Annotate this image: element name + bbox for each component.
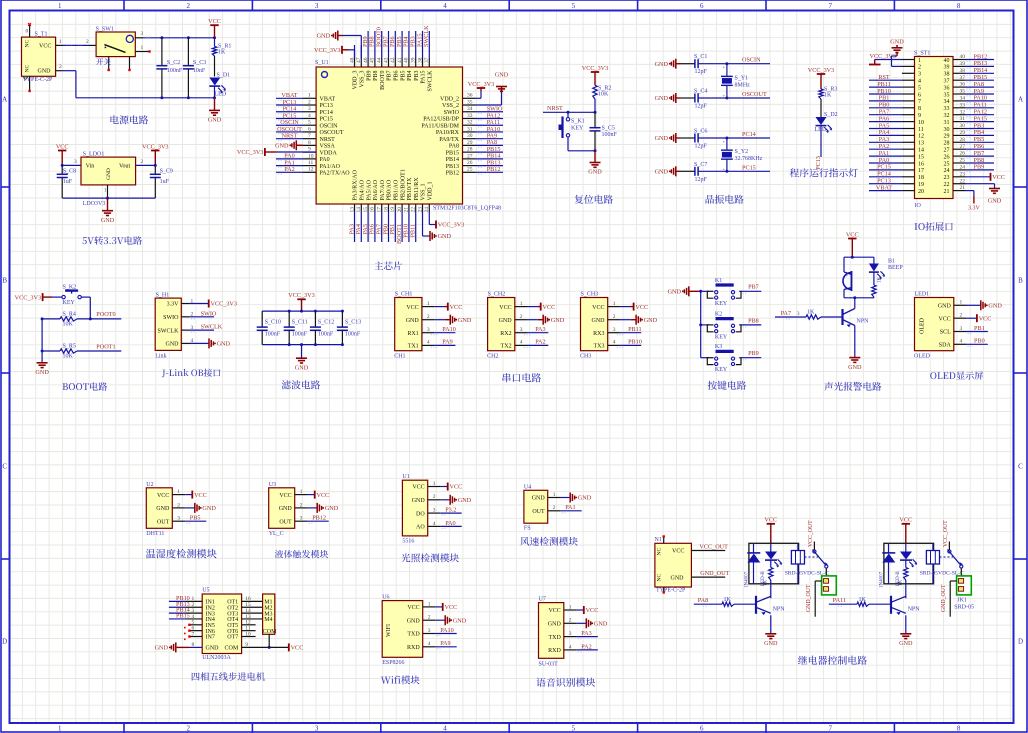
svg-text:6: 6 (700, 725, 704, 733)
svg-text:29: 29 (944, 134, 950, 140)
svg-text:6: 6 (308, 126, 311, 132)
svg-text:VCC_3V3: VCC_3V3 (438, 222, 464, 229)
svg-text:JK1: JK1 (957, 598, 967, 604)
svg-text:23: 23 (944, 175, 950, 181)
svg-text:NRST: NRST (547, 105, 563, 112)
svg-text:2: 2 (186, 2, 190, 10)
svg-text:27: 27 (467, 153, 473, 159)
svg-text:SWIO: SWIO (444, 110, 460, 116)
svg-text:1N4007: 1N4007 (745, 571, 750, 588)
svg-text:19: 19 (918, 182, 924, 188)
svg-text:25: 25 (960, 158, 966, 164)
svg-text:1: 1 (177, 489, 180, 495)
svg-text:38: 38 (944, 72, 950, 78)
svg-text:GND: GND (217, 341, 231, 348)
svg-text:8: 8 (957, 2, 961, 10)
svg-text:35: 35 (960, 89, 966, 95)
svg-text:1: 1 (141, 45, 144, 51)
svg-text:VCC: VCC (764, 517, 777, 524)
svg-text:PB5: PB5 (190, 515, 201, 522)
svg-text:A: A (1018, 96, 1023, 104)
svg-text:PA10: PA10 (440, 627, 454, 634)
svg-text:2: 2 (613, 314, 616, 320)
svg-text:34: 34 (960, 96, 966, 102)
svg-text:ULN2003A: ULN2003A (202, 655, 231, 661)
svg-text:S_K2: S_K2 (63, 285, 77, 291)
svg-text:1K: 1K (807, 310, 815, 316)
svg-text:PB14: PB14 (446, 157, 459, 163)
svg-text:PA9: PA9 (442, 339, 452, 346)
svg-text:LDO3V3: LDO3V3 (83, 201, 106, 207)
svg-text:GND: GND (988, 198, 1002, 205)
svg-text:5: 5 (918, 85, 921, 91)
svg-text:2: 2 (141, 159, 144, 165)
svg-text:U3: U3 (269, 482, 276, 488)
svg-text:VCC: VCC (445, 604, 458, 611)
svg-text:1: 1 (427, 301, 430, 307)
svg-text:33: 33 (944, 106, 950, 112)
svg-text:2: 2 (186, 725, 190, 733)
svg-text:3: 3 (141, 31, 144, 37)
svg-text:2: 2 (918, 65, 921, 71)
svg-text:39: 39 (960, 61, 966, 67)
svg-text:21: 21 (960, 185, 966, 191)
svg-text:17: 17 (918, 168, 924, 174)
svg-text:PB1: PB1 (974, 325, 985, 332)
svg-text:PA0: PA0 (320, 157, 330, 163)
svg-text:4: 4 (613, 340, 616, 346)
svg-text:PB9: PB9 (974, 164, 985, 171)
svg-text:PB3: PB3 (414, 71, 420, 81)
svg-text:10K: 10K (63, 353, 74, 359)
svg-text:PB7: PB7 (748, 284, 759, 291)
svg-text:47: 47 (356, 57, 362, 63)
svg-text:S_CH2: S_CH2 (488, 292, 506, 298)
svg-text:10: 10 (918, 120, 924, 126)
svg-text:2: 2 (59, 64, 62, 70)
svg-text:2: 2 (300, 502, 303, 508)
svg-text:VBAT: VBAT (876, 184, 892, 191)
svg-text:VCC: VCC (208, 18, 221, 25)
svg-text:2: 2 (86, 39, 89, 45)
svg-text:26: 26 (960, 151, 966, 157)
svg-text:PA11/USB/DM: PA11/USB/DM (421, 123, 459, 129)
svg-text:PB12: PB12 (446, 171, 459, 177)
svg-text:IO: IO (915, 203, 922, 209)
svg-text:5: 5 (572, 2, 576, 10)
svg-text:SWCLK: SWCLK (158, 328, 180, 334)
svg-text:GND: GND (890, 39, 904, 46)
svg-text:0: 0 (26, 29, 29, 35)
svg-text:29: 29 (960, 130, 966, 136)
svg-text:PA7/AO: PA7/AO (380, 179, 386, 200)
svg-text:3: 3 (74, 159, 77, 165)
svg-text:PA2: PA2 (535, 339, 545, 346)
svg-text:100nF: 100nF (265, 331, 281, 337)
svg-text:1K: 1K (899, 580, 904, 587)
svg-text:GND: GND (438, 233, 452, 240)
svg-text:2: 2 (427, 314, 430, 320)
svg-text:STM32F103C8T6_LQFP48: STM32F103C8T6_LQFP48 (433, 206, 501, 212)
svg-text:100nF: 100nF (292, 331, 308, 337)
svg-text:PC15: PC15 (320, 117, 333, 123)
svg-text:100nF: 100nF (318, 331, 334, 337)
svg-text:GND: GND (499, 318, 513, 324)
svg-text:26: 26 (944, 154, 950, 160)
svg-text:39: 39 (411, 57, 417, 63)
svg-text:VCC_3V3: VCC_3V3 (211, 301, 237, 308)
svg-text:S_C10: S_C10 (265, 319, 281, 325)
svg-text:GND: GND (275, 143, 289, 150)
svg-text:PA0: PA0 (445, 520, 455, 527)
svg-text:GND: GND (532, 496, 546, 502)
svg-text:RX1: RX1 (407, 331, 418, 337)
svg-text:KEY: KEY (715, 334, 728, 340)
svg-text:27: 27 (960, 144, 966, 150)
svg-text:GND: GND (655, 95, 669, 102)
svg-text:2: 2 (569, 618, 572, 624)
svg-text:VSS_2: VSS_2 (442, 103, 459, 109)
svg-text:3: 3 (177, 516, 180, 522)
svg-text:32.768KHz: 32.768KHz (735, 156, 763, 162)
svg-text:S_C12: S_C12 (318, 319, 334, 325)
svg-text:12: 12 (308, 167, 314, 173)
svg-text:1: 1 (58, 2, 62, 10)
svg-text:36: 36 (944, 85, 950, 91)
svg-text:PB6: PB6 (394, 71, 400, 81)
svg-text:PC14: PC14 (742, 131, 756, 138)
svg-text:VCC_3V3: VCC_3V3 (237, 149, 263, 156)
svg-text:1: 1 (58, 725, 62, 733)
svg-text:FS: FS (524, 526, 531, 532)
svg-text:1: 1 (308, 93, 311, 99)
svg-text:S_C2: S_C2 (167, 60, 180, 66)
svg-text:NC: NC (24, 40, 30, 48)
svg-text:U1: U1 (402, 474, 409, 480)
svg-text:13: 13 (918, 141, 924, 147)
svg-text:14: 14 (918, 148, 924, 154)
svg-text:NC: NC (657, 574, 663, 582)
svg-text:OSCIN: OSCIN (742, 57, 761, 64)
svg-text:29: 29 (467, 140, 473, 146)
svg-text:RX2: RX2 (500, 331, 511, 337)
svg-text:U5: U5 (202, 588, 209, 594)
svg-text:VCC: VCC (548, 608, 560, 614)
svg-text:PB11: PB11 (410, 224, 417, 238)
svg-text:VCC_3V3: VCC_3V3 (808, 67, 834, 74)
svg-text:U6: U6 (382, 594, 389, 600)
svg-text:37: 37 (960, 75, 966, 81)
svg-text:GND: GND (106, 168, 112, 180)
svg-text:GND: GND (655, 135, 669, 142)
svg-text:8: 8 (918, 106, 921, 112)
svg-text:40: 40 (944, 58, 950, 64)
svg-text:PB1/AO: PB1/AO (394, 179, 400, 200)
svg-text:S_D2: S_D2 (824, 112, 838, 118)
svg-text:3: 3 (308, 106, 311, 112)
svg-text:7: 7 (918, 99, 921, 105)
svg-text:32: 32 (960, 109, 966, 115)
svg-text:32: 32 (467, 120, 473, 126)
svg-text:PA9/TX: PA9/TX (439, 137, 459, 143)
svg-text:S_H1: S_H1 (156, 292, 170, 298)
svg-text:KEY: KEY (715, 301, 728, 307)
svg-text:3.3V: 3.3V (968, 206, 981, 212)
svg-text:PB2/BOOT1: PB2/BOOT1 (400, 169, 406, 200)
svg-text:VCC_3V3: VCC_3V3 (288, 292, 314, 299)
svg-text:4: 4 (443, 2, 447, 10)
svg-text:C: C (1018, 463, 1023, 471)
svg-text:2: 2 (177, 502, 180, 508)
svg-text:4: 4 (569, 644, 572, 650)
svg-text:31: 31 (944, 120, 950, 126)
svg-text:GND: GND (279, 506, 293, 512)
svg-text:S_CH3: S_CH3 (581, 292, 599, 298)
svg-text:48: 48 (349, 57, 355, 63)
svg-text:22: 22 (944, 182, 950, 188)
svg-text:NPN: NPN (857, 319, 870, 325)
svg-text:VCC_3V3: VCC_3V3 (314, 47, 340, 54)
svg-text:PB9: PB9 (366, 71, 372, 81)
svg-text:PB10: PB10 (628, 339, 642, 346)
svg-text:OLED: OLED (920, 317, 926, 334)
svg-text:VCC: VCC (938, 316, 950, 322)
svg-text:S_CH1: S_CH1 (395, 292, 413, 298)
svg-text:TX1: TX1 (408, 344, 419, 350)
svg-text:S_Y2: S_Y2 (735, 149, 749, 155)
svg-text:PA3: PA3 (581, 630, 591, 637)
svg-text:PA5/AO: PA5/AO (366, 179, 372, 200)
svg-text:3: 3 (520, 327, 523, 333)
svg-text:U7: U7 (539, 596, 546, 602)
svg-text:SWIO: SWIO (201, 310, 217, 317)
svg-text:5: 5 (308, 120, 311, 126)
svg-text:DHT11: DHT11 (146, 531, 164, 537)
svg-text:10: 10 (308, 153, 314, 159)
svg-text:S_C5: S_C5 (602, 126, 615, 132)
svg-text:VBAT: VBAT (320, 97, 336, 103)
svg-text:1: 1 (569, 604, 572, 610)
svg-text:5: 5 (572, 725, 576, 733)
svg-text:4: 4 (960, 339, 963, 345)
svg-text:RX3: RX3 (593, 331, 604, 337)
svg-text:28: 28 (960, 137, 966, 143)
svg-text:36: 36 (467, 93, 473, 99)
svg-text:S_C13: S_C13 (345, 319, 361, 325)
svg-text:VCC: VCC (846, 231, 859, 238)
svg-text:1K: 1K (878, 277, 883, 284)
svg-text:25: 25 (467, 167, 473, 173)
svg-text:COM: COM (225, 646, 239, 652)
svg-text:PB9: PB9 (748, 350, 759, 357)
svg-text:DO: DO (416, 511, 425, 517)
svg-text:12pF: 12pF (695, 104, 708, 110)
svg-text:K2: K2 (715, 311, 722, 317)
svg-text:2: 2 (520, 314, 523, 320)
svg-text:1: 1 (433, 481, 436, 487)
svg-text:NRST: NRST (282, 132, 298, 139)
svg-text:VCC_OUT: VCC_OUT (808, 520, 814, 547)
svg-text:2: 2 (960, 313, 963, 319)
svg-text:GND: GND (406, 318, 420, 324)
svg-text:4: 4 (427, 340, 430, 346)
svg-text:VCC: VCC (672, 549, 684, 555)
svg-text:A: A (2, 96, 7, 104)
svg-text:PC14: PC14 (320, 110, 333, 116)
svg-text:PB11/RX: PB11/RX (414, 177, 420, 201)
svg-text:GND: GND (548, 622, 562, 628)
svg-text:VCC: VCC (56, 143, 69, 150)
svg-text:GND: GND (166, 342, 180, 348)
svg-text:NPN: NPN (908, 607, 921, 613)
svg-text:38: 38 (960, 68, 966, 74)
svg-text:15: 15 (918, 154, 924, 160)
svg-text:PA2/TX/AO: PA2/TX/AO (320, 171, 351, 177)
svg-text:U2: U2 (146, 482, 153, 488)
svg-text:12: 12 (918, 134, 924, 140)
svg-text:IN7: IN7 (206, 635, 215, 641)
svg-text:COM: COM (263, 629, 277, 635)
svg-text:3: 3 (960, 326, 963, 332)
svg-text:S_SW1: S_SW1 (96, 26, 114, 32)
svg-text:1uF: 1uF (160, 179, 170, 185)
svg-text:44: 44 (377, 57, 383, 63)
svg-text:GND_OUT: GND_OUT (806, 584, 812, 612)
svg-text:3: 3 (428, 628, 431, 634)
svg-text:2: 2 (433, 494, 436, 500)
svg-text:VCC: VCC (194, 492, 207, 499)
svg-text:GND: GND (35, 369, 49, 376)
svg-text:BEEP: BEEP (888, 265, 903, 271)
svg-text:28: 28 (467, 147, 473, 153)
svg-text:Link: Link (155, 354, 166, 360)
svg-text:28: 28 (944, 141, 950, 147)
svg-text:GND: GND (988, 303, 1002, 310)
svg-text:P3.2: P3.2 (445, 507, 456, 514)
svg-text:PA3: PA3 (535, 326, 545, 333)
svg-text:42: 42 (390, 57, 396, 63)
svg-text:1: 1 (520, 301, 523, 307)
svg-text:6: 6 (700, 2, 704, 10)
svg-text:PB13: PB13 (446, 164, 459, 170)
svg-text:33: 33 (960, 102, 966, 108)
svg-text:1: 1 (960, 300, 963, 306)
svg-text:S_ST1: S_ST1 (914, 51, 930, 57)
svg-text:K3: K3 (715, 344, 722, 350)
svg-text:SWIO: SWIO (163, 315, 179, 321)
svg-text:GND: GND (407, 618, 421, 624)
svg-text:GND: GND (458, 317, 472, 324)
svg-text:GND: GND (551, 317, 565, 324)
svg-text:16: 16 (918, 161, 924, 167)
svg-text:GND: GND (495, 72, 509, 79)
svg-text:VSS_1: VSS_1 (421, 183, 427, 200)
svg-text:C: C (2, 463, 7, 471)
svg-text:TX3: TX3 (594, 344, 605, 350)
svg-text:38: 38 (417, 57, 423, 63)
svg-text:VCC: VCC (407, 605, 419, 611)
svg-text:10K: 10K (598, 91, 609, 97)
svg-text:NRST: NRST (320, 137, 336, 143)
svg-text:AO: AO (416, 525, 425, 531)
svg-text:PA9: PA9 (440, 640, 450, 647)
svg-text:S_C11: S_C11 (292, 319, 308, 325)
svg-text:12pF: 12pF (695, 144, 708, 150)
svg-text:PA1: PA1 (565, 504, 575, 511)
svg-text:PB5: PB5 (400, 71, 406, 81)
svg-text:VDD_3: VDD_3 (353, 71, 359, 90)
svg-text:SWCLK: SWCLK (428, 70, 434, 92)
svg-text:23: 23 (960, 171, 966, 177)
svg-text:WIFI: WIFI (386, 624, 392, 637)
svg-text:GND: GND (938, 304, 952, 310)
svg-text:10nF: 10nF (193, 68, 206, 74)
svg-text:RXD: RXD (407, 645, 420, 651)
svg-text:25: 25 (944, 161, 950, 167)
svg-text:4: 4 (433, 521, 436, 527)
svg-text:3: 3 (613, 327, 616, 333)
svg-text:VCC: VCC (979, 315, 992, 322)
svg-text:KEY: KEY (715, 367, 728, 373)
svg-text:Vout: Vout (119, 163, 131, 169)
svg-text:B: B (1018, 277, 1023, 285)
svg-text:100nF: 100nF (602, 132, 618, 138)
svg-text:NC: NC (24, 65, 30, 73)
svg-text:OUT: OUT (532, 509, 545, 515)
svg-text:1K: 1K (824, 93, 832, 99)
svg-text:10K: 10K (63, 321, 74, 327)
svg-text:3: 3 (315, 725, 319, 733)
svg-text:45: 45 (370, 57, 376, 63)
svg-text:+: + (846, 274, 849, 279)
svg-text:VCC_3V3: VCC_3V3 (142, 143, 168, 150)
svg-text:22: 22 (960, 178, 966, 184)
svg-text:PB0/AO: PB0/AO (387, 179, 393, 200)
svg-text:VCC: VCC (450, 484, 463, 491)
svg-text:TX2: TX2 (501, 344, 512, 350)
svg-text:PA15: PA15 (421, 71, 427, 84)
svg-text:GND: GND (453, 617, 467, 624)
svg-text:NC: NC (657, 548, 663, 556)
svg-text:VSS_3: VSS_3 (360, 71, 366, 88)
svg-text:OSCOUT: OSCOUT (742, 91, 767, 98)
svg-text:PB7: PB7 (387, 71, 393, 81)
svg-text:31: 31 (467, 126, 473, 132)
svg-text:SU-03T: SU-03T (539, 661, 559, 667)
svg-text:VCC: VCC (406, 305, 418, 311)
svg-text:27: 27 (944, 148, 950, 154)
svg-text:PA2: PA2 (581, 643, 591, 650)
svg-text:CH1: CH1 (394, 353, 405, 359)
svg-text:CH2: CH2 (487, 353, 498, 359)
svg-text:VSSA: VSSA (320, 144, 336, 150)
svg-text:21: 21 (944, 189, 950, 195)
svg-text:U4: U4 (524, 484, 531, 490)
svg-text:OUT: OUT (279, 519, 292, 525)
svg-text:POOT0: POOT0 (96, 311, 115, 318)
svg-text:33: 33 (467, 113, 473, 119)
svg-text:11: 11 (308, 160, 314, 166)
svg-text:PB10/TX: PB10/TX (407, 177, 413, 201)
svg-text:VCC: VCC (317, 492, 330, 499)
svg-text:B: B (2, 277, 7, 285)
svg-text:PB15: PB15 (446, 150, 459, 156)
svg-text:GND: GND (317, 33, 331, 40)
svg-text:1N4007: 1N4007 (880, 571, 885, 588)
svg-text:LED1: LED1 (915, 292, 930, 298)
svg-text:S_C3: S_C3 (193, 60, 206, 66)
svg-text:3: 3 (918, 72, 921, 78)
